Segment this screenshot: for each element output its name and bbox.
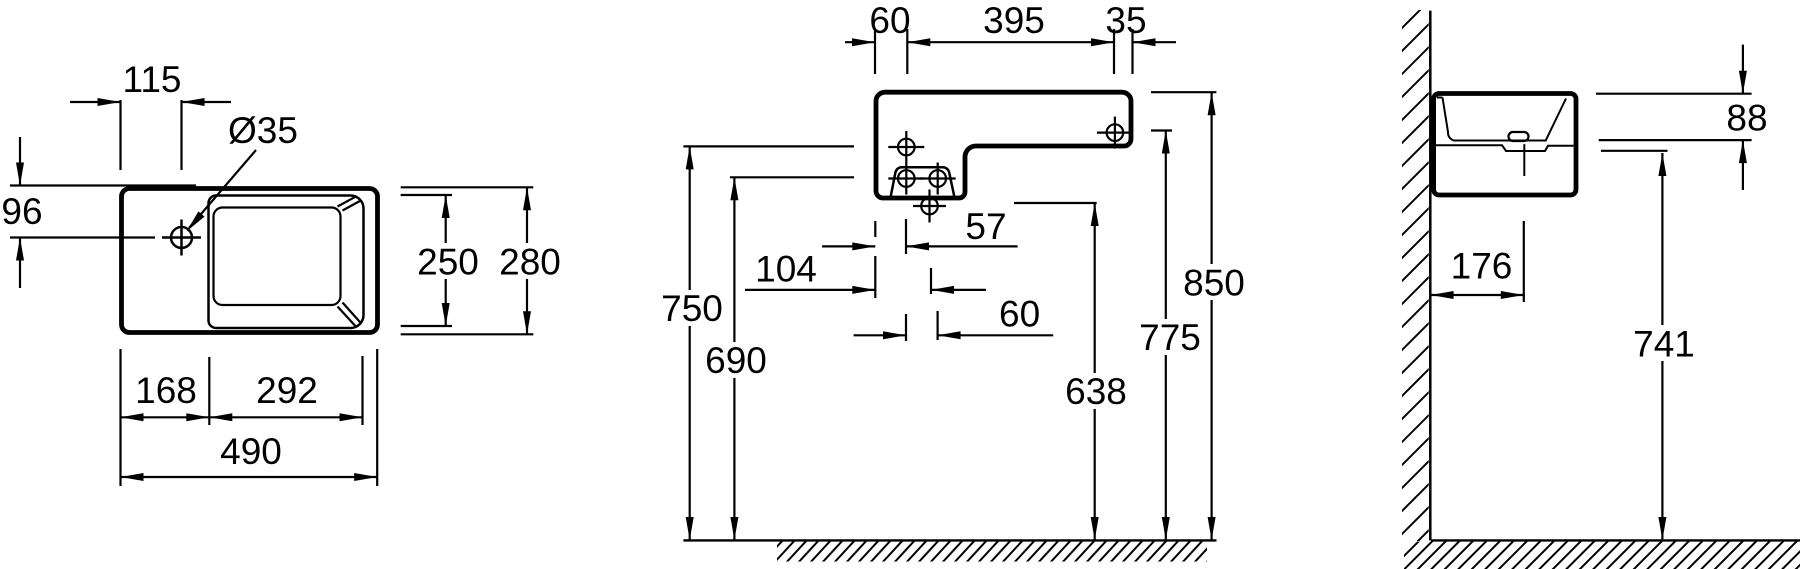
svg-text:Ø35: Ø35 (228, 110, 298, 151)
svg-text:292: 292 (256, 370, 318, 411)
svg-text:638: 638 (1065, 371, 1127, 412)
svg-text:60: 60 (869, 0, 910, 41)
svg-text:690: 690 (705, 340, 767, 381)
svg-text:176: 176 (1451, 245, 1513, 286)
svg-text:741: 741 (1633, 324, 1695, 365)
svg-text:280: 280 (499, 242, 561, 283)
svg-text:115: 115 (123, 59, 182, 100)
svg-text:57: 57 (965, 206, 1006, 247)
svg-text:250: 250 (417, 242, 479, 283)
svg-text:60: 60 (999, 294, 1040, 335)
svg-text:395: 395 (983, 0, 1045, 41)
svg-text:168: 168 (135, 370, 197, 411)
svg-text:35: 35 (1105, 0, 1146, 41)
svg-text:750: 750 (661, 288, 723, 329)
svg-text:850: 850 (1183, 263, 1245, 304)
svg-text:775: 775 (1139, 317, 1201, 358)
svg-text:96: 96 (1, 191, 42, 232)
svg-text:104: 104 (755, 249, 817, 290)
svg-text:490: 490 (220, 431, 282, 472)
svg-text:88: 88 (1726, 98, 1767, 139)
